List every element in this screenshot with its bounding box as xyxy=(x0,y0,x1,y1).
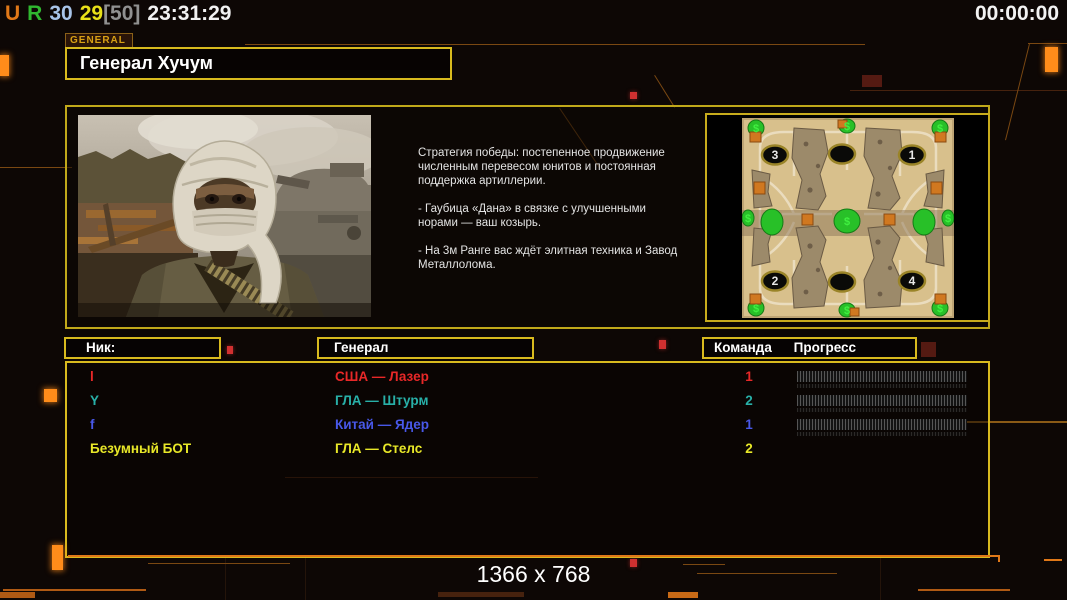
minimap-image: $ $ $ $ $ $ $ $ $ 3 1 2 xyxy=(742,118,954,318)
general-tab-label: GENERAL xyxy=(65,33,133,47)
header-team: Команда xyxy=(714,340,772,355)
player-team: 1 xyxy=(739,369,759,384)
stat-token: U xyxy=(5,2,20,25)
stat-token: R xyxy=(27,2,42,25)
loading-screen: UR3029[50]23:31:29 00:00:00 GENERAL Гене… xyxy=(0,0,1067,600)
header-nick: Ник: xyxy=(64,337,221,359)
loading-progress-bar-echo xyxy=(797,408,967,412)
loading-progress-bar xyxy=(797,371,967,382)
clock-readout: 23:31:29 xyxy=(147,2,231,25)
money-icon: $ xyxy=(936,303,942,315)
deco-square xyxy=(921,342,936,357)
trace-line xyxy=(1028,43,1067,44)
player-row: l США — Лазер 1 xyxy=(67,366,988,390)
money-icon: $ xyxy=(944,213,950,225)
player-stats-readout: UR3029[50]23:31:29 xyxy=(5,2,238,26)
bottom-accent-line xyxy=(68,555,1000,557)
trace-line xyxy=(850,90,1067,91)
money-icon: $ xyxy=(744,213,750,225)
trace-line xyxy=(3,589,146,591)
deco-square xyxy=(0,55,9,76)
player-general: ГЛА — Штурм xyxy=(335,393,428,408)
stat-token: [50] xyxy=(103,2,140,25)
deco-square xyxy=(1045,47,1058,72)
deco-square xyxy=(227,346,233,354)
trace-line xyxy=(0,167,72,168)
money-icon: $ xyxy=(843,216,849,228)
loading-progress-bar-echo xyxy=(797,384,967,388)
deco-square xyxy=(630,92,637,99)
general-name-title: Генерал Хучум xyxy=(65,47,452,80)
header-progress: Прогресс xyxy=(794,340,856,355)
player-nick: l xyxy=(90,369,94,384)
player-team: 2 xyxy=(739,393,759,408)
money-icon: $ xyxy=(752,123,758,135)
loading-progress-bar xyxy=(797,395,967,406)
description-paragraph: - Гаубица «Дана» в связке с улучшенными … xyxy=(418,202,686,230)
player-row: f Китай — Ядер 1 xyxy=(67,414,988,438)
stat-token: 29 xyxy=(80,2,103,25)
player-general: Китай — Ядер xyxy=(335,417,429,432)
money-icon: $ xyxy=(936,123,942,135)
trace-strip xyxy=(0,592,35,598)
money-icon: $ xyxy=(843,121,849,133)
trace-strip xyxy=(438,592,524,597)
trace-line xyxy=(918,589,1010,591)
start-position-3: 3 xyxy=(771,148,778,162)
stat-token: 30 xyxy=(49,2,72,25)
player-team: 2 xyxy=(739,441,759,456)
trace-line xyxy=(245,44,865,45)
general-portrait-image xyxy=(78,115,371,317)
description-paragraph: - На 3м Ранге вас ждёт элитная техника и… xyxy=(418,244,686,272)
deco-square xyxy=(44,389,57,402)
player-general: США — Лазер xyxy=(335,369,429,384)
players-table: l США — Лазер 1 Y ГЛА — Штурм 2 f Китай … xyxy=(65,361,990,558)
loading-progress-bar-echo xyxy=(797,432,967,436)
strategy-description: Стратегия победы: постепенное продвижени… xyxy=(418,146,686,286)
deco-square xyxy=(862,75,882,87)
money-icon: $ xyxy=(752,303,758,315)
player-row: Безумный БОТ ГЛА — Стелс 2 xyxy=(67,438,988,462)
money-icon: $ xyxy=(843,305,849,317)
deco-square xyxy=(659,340,666,349)
player-row: Y ГЛА — Штурм 2 xyxy=(67,390,988,414)
player-team: 1 xyxy=(739,417,759,432)
player-nick: f xyxy=(90,417,95,432)
portrait-art xyxy=(78,115,371,317)
resolution-label: 1366 x 768 xyxy=(0,561,1067,588)
player-nick: Безумный БОТ xyxy=(90,441,191,456)
player-nick: Y xyxy=(90,393,99,408)
trace-line xyxy=(1005,44,1030,140)
trace-line xyxy=(654,75,675,108)
description-paragraph: Стратегия победы: постепенное продвижени… xyxy=(418,146,686,188)
start-position-4: 4 xyxy=(908,274,915,288)
start-position-2: 2 xyxy=(771,274,778,288)
loading-progress-bar xyxy=(797,419,967,430)
start-position-1: 1 xyxy=(908,148,915,162)
header-team-progress: Команда Прогресс xyxy=(702,337,917,359)
trace-strip xyxy=(668,592,698,598)
game-timer: 00:00:00 xyxy=(975,2,1059,26)
header-general: Генерал xyxy=(317,337,534,359)
minimap-panel: $ $ $ $ $ $ $ $ $ 3 1 2 xyxy=(705,113,990,322)
player-general: ГЛА — Стелс xyxy=(335,441,422,456)
